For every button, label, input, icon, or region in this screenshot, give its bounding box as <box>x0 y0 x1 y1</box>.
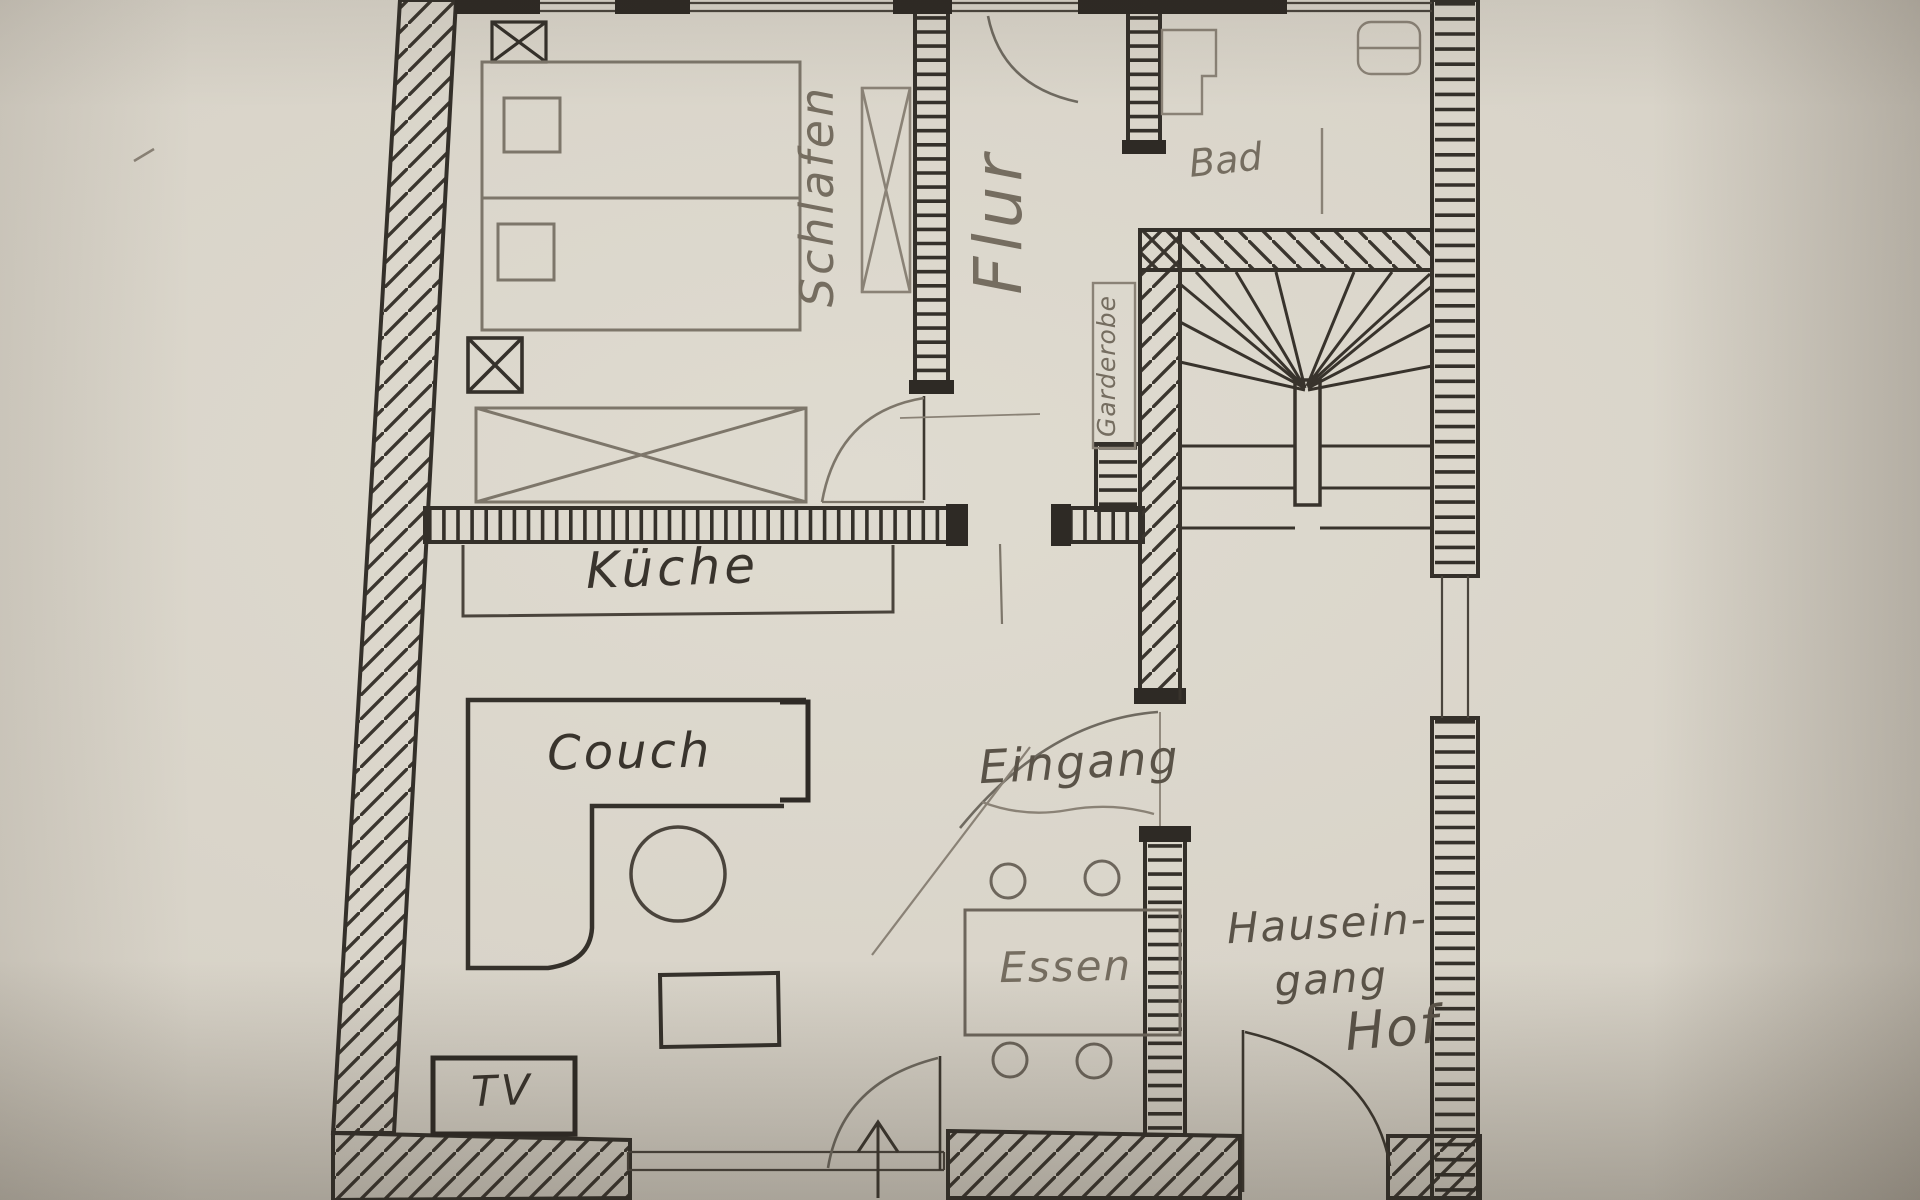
kueche-label: Küche <box>585 536 760 600</box>
coffee-table-icon <box>631 827 725 921</box>
garderobe-label: Garderobe <box>1092 295 1121 437</box>
window-top-2 <box>690 3 893 11</box>
ottoman-icon <box>660 973 779 1047</box>
interior-and-right-walls <box>425 0 1478 1198</box>
couch-label: Couch <box>547 723 713 782</box>
flur-pencil-line <box>900 414 1040 418</box>
chair-icon <box>991 864 1025 898</box>
kueche-door-leaf <box>1000 544 1002 624</box>
floor-plan-drawing: Schlafen Flur Bad Garderobe Küche Couch … <box>0 0 1920 1200</box>
stair-treads-right <box>1320 446 1432 528</box>
stair-treads-left <box>1180 446 1295 528</box>
window-bottom-terrace <box>628 1152 944 1170</box>
chair-icon <box>993 1043 1027 1077</box>
stair-fan-left <box>1180 284 1305 390</box>
essen-label: Essen <box>999 941 1133 992</box>
stair-fan-top <box>1196 272 1430 388</box>
stray-pencil-mark <box>134 149 154 161</box>
hauseingang-label-line2: gang <box>1273 951 1389 1006</box>
sink-icon <box>1162 30 1216 114</box>
chair-icon <box>1085 861 1119 895</box>
window-right-wall <box>1442 576 1468 718</box>
bottom-left-wall <box>333 1133 630 1200</box>
stair-left-wall <box>1140 230 1180 702</box>
doors <box>822 16 1390 1198</box>
schlafen-door-arc <box>822 398 924 502</box>
nightstand-icon <box>492 22 546 62</box>
hof-label: Hof <box>1342 995 1447 1063</box>
eingang-underline <box>982 802 1154 814</box>
exterior-walls <box>333 0 1480 1200</box>
eingang-label: Eingang <box>978 730 1181 794</box>
chair-icon <box>1077 1044 1111 1078</box>
hauseingang-label-line1: Hausein- <box>1226 894 1429 953</box>
stair-newel-post <box>1295 380 1320 505</box>
window-top-3 <box>952 3 1078 11</box>
right-wall-lower <box>1432 718 1478 1198</box>
bed-icon <box>482 62 800 330</box>
stair-enclosure <box>1140 230 1432 702</box>
flur-top-door-arc <box>988 16 1078 102</box>
flur-label: Flur <box>960 149 1037 294</box>
stair-top-wall <box>1140 230 1432 270</box>
left-exterior-wall <box>333 0 456 1133</box>
photo-of-sketch: Schlafen Flur Bad Garderobe Küche Couch … <box>0 0 1920 1200</box>
kueche-wall <box>425 508 965 542</box>
right-wall-upper <box>1432 0 1478 576</box>
bottom-middle-wall <box>948 1131 1240 1198</box>
tv-label: TV <box>470 1065 534 1116</box>
bad-label: Bad <box>1187 134 1266 186</box>
staircase-icon <box>1180 270 1432 700</box>
schlafen-label: Schlafen <box>790 85 844 307</box>
window-top-1 <box>540 3 615 11</box>
bad-fixtures <box>1162 22 1420 214</box>
couch-armrest-icon <box>780 702 808 800</box>
wardrobe-icon <box>862 88 910 292</box>
window-top-4 <box>1287 3 1432 11</box>
stair-inner-boundary <box>1180 270 1432 700</box>
lamp-box-icon <box>468 338 522 392</box>
chest-icon <box>476 408 806 502</box>
